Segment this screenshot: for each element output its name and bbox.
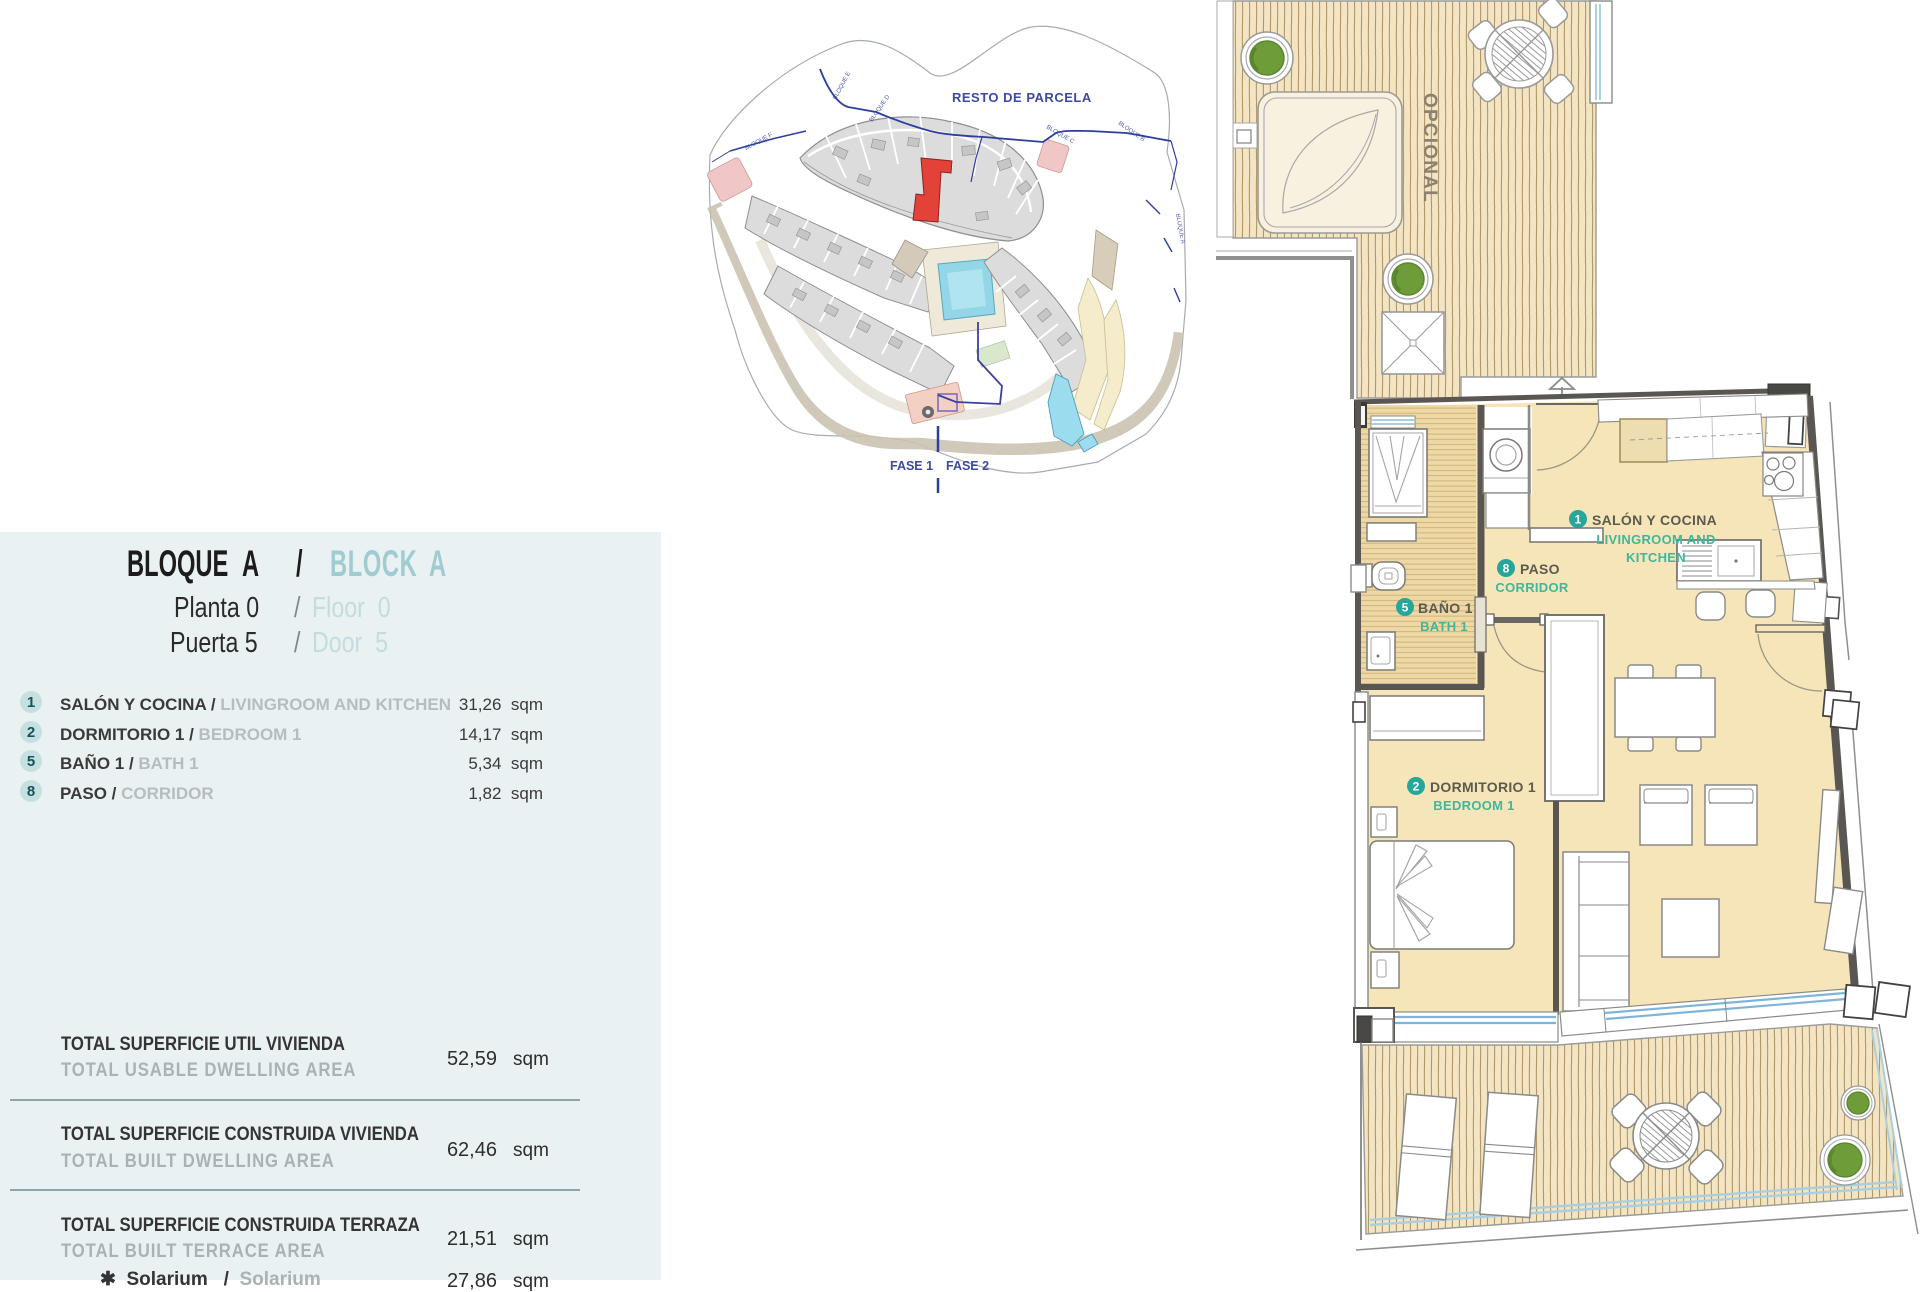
svg-text:LIVINGROOM AND: LIVINGROOM AND <box>1596 532 1715 547</box>
svg-text:BLOQUE E: BLOQUE E <box>832 71 852 101</box>
svg-text:FASE 1: FASE 1 <box>890 459 933 473</box>
svg-text:FASE 2: FASE 2 <box>946 459 989 473</box>
svg-text:BAÑO 1: BAÑO 1 <box>1418 599 1473 616</box>
svg-text:CORRIDOR: CORRIDOR <box>1495 580 1568 595</box>
svg-text:1: 1 <box>1575 513 1582 527</box>
svg-text:PASO: PASO <box>1520 561 1560 577</box>
svg-text:BATH 1: BATH 1 <box>1420 619 1468 634</box>
svg-text:BLOQUE A: BLOQUE A <box>1174 213 1185 244</box>
svg-text:KITCHEN: KITCHEN <box>1626 550 1686 565</box>
svg-text:8: 8 <box>1503 562 1510 576</box>
svg-text:BEDROOM 1: BEDROOM 1 <box>1433 798 1514 813</box>
svg-text:BLOQUE F: BLOQUE F <box>744 132 774 152</box>
svg-text:OPCIONAL: OPCIONAL <box>1419 93 1440 203</box>
svg-text:2: 2 <box>1413 780 1420 794</box>
svg-text:SALÓN Y COCINA: SALÓN Y COCINA <box>1592 511 1717 528</box>
svg-text:DORMITORIO 1: DORMITORIO 1 <box>1430 779 1536 795</box>
svg-text:5: 5 <box>1402 601 1409 615</box>
svg-text:RESTO DE PARCELA: RESTO DE PARCELA <box>952 90 1092 105</box>
